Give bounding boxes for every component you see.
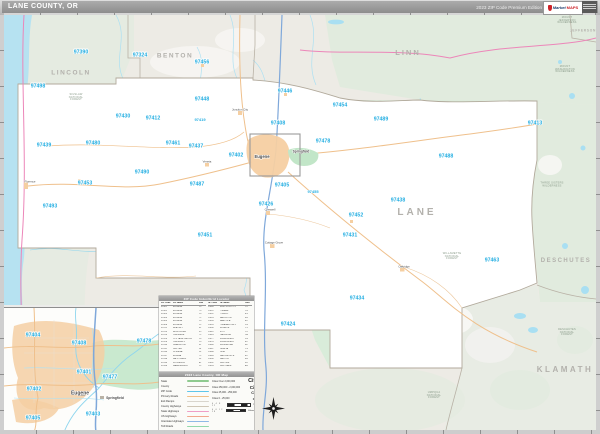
zip-code-label: 97438 <box>391 198 405 203</box>
county-name-label: LINN <box>395 49 421 57</box>
index-column-header: Grid <box>199 302 206 305</box>
inset-town-name-label: Springfield <box>106 397 124 401</box>
zip-index-row: 97493WESTLAKEA3 <box>208 365 253 368</box>
inset-zip-code-label: 97402 <box>27 387 41 392</box>
inset-zip-code-label: 97405 <box>26 416 40 421</box>
legend-item-label: State <box>161 380 187 383</box>
zip-index-column: ZIP CodeZIP NameGrid97401EUGENED397402EU… <box>161 302 206 369</box>
town-name-label: Springfield <box>293 150 310 153</box>
index-column-header: ZIP Name <box>220 302 245 305</box>
map-poster: LANE COUNTY, OR 2023 ZIP Code Premium Ed… <box>0 0 600 434</box>
zip-code-label: 97412 <box>146 116 160 121</box>
index-column-header: ZIP Code <box>208 302 219 305</box>
legend-city-row: Cities 0 - 25,000City <box>212 396 254 402</box>
zip-code-label: 97413 <box>528 121 542 126</box>
zip-code-label: 97451 <box>198 233 212 238</box>
legend-row: Toll Roads <box>161 424 209 429</box>
city-sample-text: City <box>253 397 254 401</box>
scale-ticks: 0 6 12 18 <box>212 409 224 413</box>
county-name-label: JEFFERSON <box>570 29 596 32</box>
scale-ticks: 0 4 8 12 <box>212 403 225 407</box>
zip-code-label: 97434 <box>350 296 364 301</box>
zip-code-label: 97437 <box>189 144 203 149</box>
zip-code-label: 97452 <box>349 213 363 218</box>
legend-item-label: Primary Roads <box>161 395 187 398</box>
zip-code-label: 97402 <box>229 153 243 158</box>
zip-index-cell: 97446 <box>161 365 172 368</box>
protected-area-label: MOUNT JEFFERSON WILDERNESS <box>557 17 576 25</box>
logo-pin-icon <box>548 5 552 11</box>
title-bar: LANE COUNTY, OR 2023 ZIP Code Premium Ed… <box>2 1 598 13</box>
zip-index-row: 97446HARRISBURGD2 <box>161 365 206 368</box>
city-class-label: Cities 250,000 - 2,000,000 <box>212 386 240 389</box>
zip-code-label: 97408 <box>271 121 285 126</box>
county-name-label: KLAMATH <box>537 366 593 374</box>
legend-line-swatch <box>187 426 209 427</box>
legend-item-label: Exit Ramps <box>161 400 187 403</box>
legend-item-label: County <box>161 385 187 388</box>
city-class-label: Cities 0 - 25,000 <box>212 397 229 400</box>
county-name-label: LANE <box>397 208 436 219</box>
zip-code-label: 97498 <box>31 84 45 89</box>
legend-line-swatch <box>187 386 209 387</box>
zip-code-label: 97489 <box>374 117 388 122</box>
zip-index-cell: D2 <box>199 365 206 368</box>
protected-area-label: SIUSLAW NATIONAL FOREST <box>69 94 83 102</box>
eugene-inset-map: 9740497408974789740197477974029740397405… <box>3 307 161 433</box>
inset-town-name-label: Eugene <box>71 391 89 396</box>
protected-area-label: UMPQUA NATIONAL FOREST <box>427 392 441 400</box>
zip-index-column: ZIP CodeZIP NameGrid97448JUNCTION CITYC2… <box>208 302 253 369</box>
legend-line-swatch <box>187 401 209 402</box>
frame-left <box>0 15 4 430</box>
town-name-label: Florence <box>25 181 36 184</box>
zip-code-label: 97487 <box>190 182 204 187</box>
legend-item-label: County Highways <box>161 405 187 408</box>
logo-text: Market <box>553 5 566 10</box>
inset-zip-code-label: 97403 <box>86 412 100 417</box>
scale-bar <box>227 403 252 407</box>
zip-code-label: 97430 <box>116 114 130 119</box>
city-class-label: Cities 25,000 - 250,000 <box>212 391 237 394</box>
legend-item-label: State Highways <box>161 410 187 413</box>
county-name-label: BENTON <box>157 54 193 61</box>
index-column-header: ZIP Code <box>161 302 172 305</box>
zip-index-cell: WESTLAKE <box>220 365 245 368</box>
zip-code-label: 97324 <box>133 53 147 58</box>
zip-index-cell: HARRISBURG <box>173 365 198 368</box>
inset-zip-code-label: 97478 <box>137 339 151 344</box>
zip-code-label: 97454 <box>333 103 347 108</box>
legend-city-items: Cities Over 2,000,000CityCities 250,000 … <box>212 379 254 430</box>
zip-code-label: 97390 <box>74 50 88 55</box>
legend-line-swatch <box>187 380 209 381</box>
zip-code-label: 97431 <box>343 233 357 238</box>
town-name-label: Creswell <box>265 209 276 212</box>
zip-index-cell: A3 <box>245 365 252 368</box>
zip-code-label: 97478 <box>316 139 330 144</box>
zip-code-label: 97490 <box>135 170 149 175</box>
zip-code-label: 97448 <box>195 97 209 102</box>
scale-label: Kilometers <box>248 410 254 412</box>
inset-zip-code-label: 97408 <box>72 341 86 346</box>
zip-code-label: 97456 <box>195 60 209 65</box>
zip-code-label: 97461 <box>166 141 180 146</box>
inset-zip-code-label: 97404 <box>26 333 40 338</box>
legend-line-swatch <box>187 396 209 397</box>
legend-item-label: Toll Roads <box>161 425 187 428</box>
protected-area-label: DESCHUTES NATIONAL FOREST <box>558 329 576 337</box>
zip-code-label: 97424 <box>281 322 295 327</box>
legend-item-label: US Highways <box>161 415 187 418</box>
county-name-label: DESCHUTES <box>541 258 592 264</box>
zip-index-panel: ZIP Code Index/Grid Locator ZIP CodeZIP … <box>159 296 254 372</box>
publisher-info-block <box>582 1 597 13</box>
edition-label: 2023 ZIP Code Premium Edition <box>476 5 542 10</box>
legend-body: StateCountyZIP CodePrimary RoadsExit Ram… <box>159 377 254 431</box>
town-name-label: Oakridge <box>398 266 409 269</box>
scale-label: Miles <box>253 404 254 406</box>
city-sample-text: City <box>248 378 254 384</box>
legend-item-label: Interstate Highways <box>161 420 187 423</box>
index-column-header: Grid <box>245 302 252 305</box>
zip-index-table: ZIP CodeZIP NameGrid97401EUGENED397402EU… <box>159 301 254 370</box>
zip-code-label: 97455 <box>307 190 318 194</box>
city-class-label: Cities Over 2,000,000 <box>212 380 235 383</box>
city-sample-text: City <box>251 391 254 395</box>
legend-line-swatch <box>187 421 209 422</box>
frame-bottom <box>0 430 600 434</box>
legend-line-swatch <box>187 416 209 417</box>
zip-code-label: 97453 <box>78 181 92 186</box>
zip-code-label: 97439 <box>37 143 51 148</box>
zip-code-label: 97480 <box>86 141 100 146</box>
logo-text: MAPS <box>567 5 579 10</box>
town-name-label: Veneta <box>203 161 212 164</box>
zip-code-label: 97446 <box>278 89 292 94</box>
zip-code-label: 97405 <box>275 183 289 188</box>
town-name-label: Cottage Grove <box>265 242 283 245</box>
inset-zip-code-label: 97401 <box>77 370 91 375</box>
compass-rose-icon <box>262 396 285 421</box>
publisher-logo: Market MAPS <box>543 1 583 15</box>
protected-area-label: WILLAMETTE NATIONAL FOREST <box>443 253 462 261</box>
city-sample-text: City <box>250 385 254 390</box>
town-name-label: Eugene <box>254 155 269 159</box>
legend-line-items: StateCountyZIP CodePrimary RoadsExit Ram… <box>161 379 209 430</box>
legend-line-swatch <box>187 391 209 392</box>
town-name-label: Junction City <box>232 109 248 112</box>
zip-code-label: 97493 <box>43 204 57 209</box>
legend-line-swatch <box>187 411 209 412</box>
protected-area-label: MOUNT WASHINGTON WILDERNESS <box>555 66 575 74</box>
legend-item-label: ZIP Code <box>161 390 187 393</box>
legend-panel: 2023 Lane County, OR Map StateCountyZIP … <box>159 372 254 431</box>
page-title: LANE COUNTY, OR <box>2 3 78 10</box>
index-column-header: ZIP Name <box>173 302 198 305</box>
scale-bar-kilometers: 0 6 12 18 Kilometers <box>212 409 254 413</box>
zip-code-label: 97463 <box>485 258 499 263</box>
legend-line-swatch <box>187 406 209 407</box>
county-name-label: LINCOLN <box>51 71 90 78</box>
inset-label-layer: 9740497408974789740197477974029740397405… <box>4 308 160 432</box>
zip-code-label: 97419 <box>194 118 205 122</box>
scale-bar-miles: 0 4 8 12 Miles <box>212 403 254 407</box>
zip-index-cell: 97493 <box>208 365 219 368</box>
zip-code-label: 97488 <box>439 154 453 159</box>
protected-area-label: THREE SISTERS WILDERNESS <box>540 182 563 187</box>
scale-bar <box>226 409 246 413</box>
inset-zip-code-label: 97477 <box>103 375 117 380</box>
frame-right <box>596 15 600 430</box>
